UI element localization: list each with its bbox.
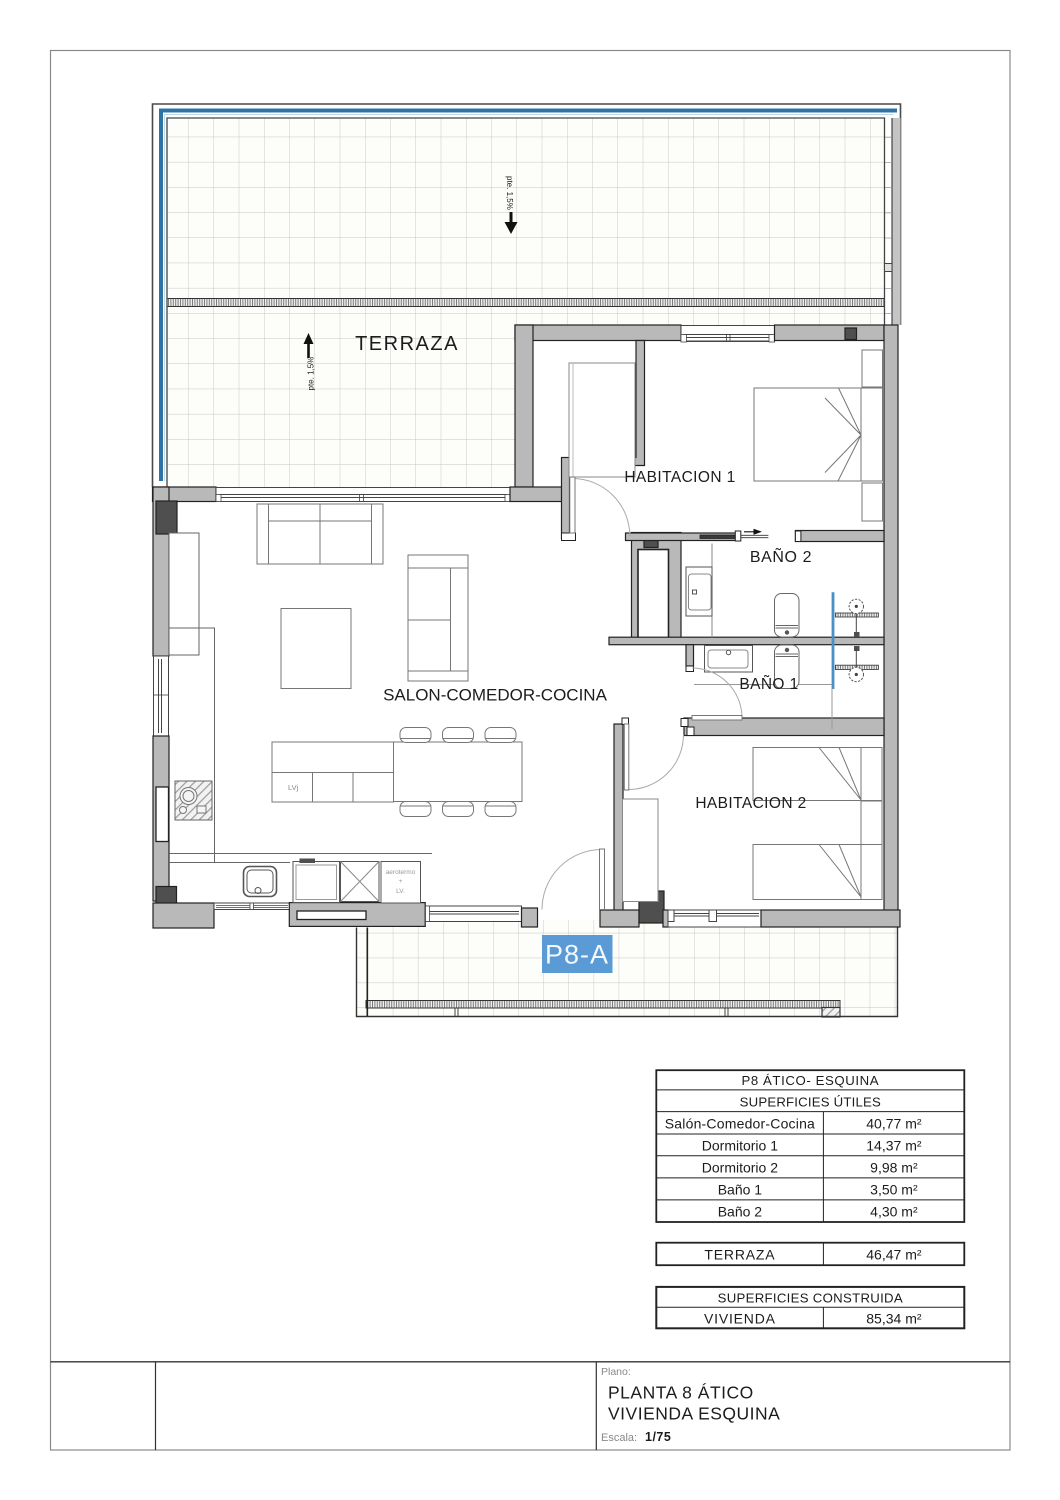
svg-text:1/75: 1/75	[645, 1430, 671, 1444]
svg-text:LVj: LVj	[288, 783, 299, 792]
svg-text:PLANTA 8 ÁTICO: PLANTA 8 ÁTICO	[608, 1383, 754, 1403]
svg-text:BAÑO 2: BAÑO 2	[750, 546, 812, 566]
svg-text:4,30 m²: 4,30 m²	[870, 1204, 918, 1220]
svg-text:P8 ÁTICO- ESQUINA: P8 ÁTICO- ESQUINA	[741, 1073, 879, 1088]
svg-text:Escala:: Escala:	[601, 1432, 637, 1444]
svg-text:14,37 m²: 14,37 m²	[866, 1138, 922, 1154]
svg-text:HABITACION 1: HABITACION 1	[624, 469, 735, 486]
svg-text:40,77 m²: 40,77 m²	[866, 1116, 922, 1132]
svg-text:TERRAZA: TERRAZA	[704, 1247, 775, 1263]
svg-text:aerotermo: aerotermo	[386, 869, 416, 876]
svg-text:Dormitorio 2: Dormitorio 2	[702, 1160, 778, 1176]
svg-text:9,98 m²: 9,98 m²	[870, 1160, 918, 1176]
svg-text:+: +	[399, 878, 403, 885]
svg-text:3,50 m²: 3,50 m²	[870, 1182, 918, 1198]
svg-text:SALON-COMEDOR-COCINA: SALON-COMEDOR-COCINA	[383, 686, 608, 705]
svg-text:VIVIENDA ESQUINA: VIVIENDA ESQUINA	[608, 1404, 780, 1424]
svg-text:85,34 m²: 85,34 m²	[866, 1311, 922, 1327]
svg-text:Plano:: Plano:	[601, 1366, 631, 1378]
svg-text:HABITACION 2: HABITACION 2	[695, 795, 806, 812]
svg-text:LV.: LV.	[396, 888, 405, 895]
svg-text:SUPERFICIES ÚTILES: SUPERFICIES ÚTILES	[740, 1095, 881, 1110]
svg-text:Salón-Comedor-Cocina: Salón-Comedor-Cocina	[665, 1116, 815, 1132]
svg-text:Dormitorio 1: Dormitorio 1	[702, 1138, 778, 1154]
svg-text:TERRAZA: TERRAZA	[355, 333, 459, 355]
svg-text:BAÑO 1: BAÑO 1	[739, 676, 798, 693]
svg-text:46,47 m²: 46,47 m²	[866, 1247, 922, 1263]
svg-text:VIVIENDA: VIVIENDA	[704, 1311, 776, 1327]
svg-text:Baño 1: Baño 1	[718, 1182, 763, 1198]
svg-text:pte. 1,5%: pte. 1,5%	[307, 357, 316, 391]
svg-text:pte. 1,5%: pte. 1,5%	[505, 176, 514, 210]
svg-text:SUPERFICIES CONSTRUIDA: SUPERFICIES CONSTRUIDA	[718, 1291, 903, 1306]
svg-text:Baño 2: Baño 2	[718, 1204, 763, 1220]
svg-text:P8-A: P8-A	[545, 940, 609, 970]
